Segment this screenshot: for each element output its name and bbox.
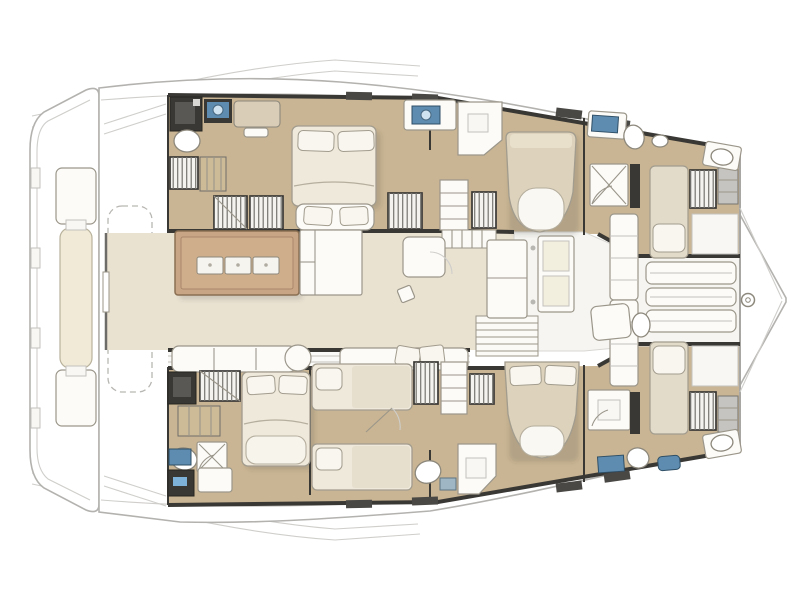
salon-sofa — [172, 345, 311, 372]
desk — [198, 468, 232, 492]
forestay-ring-icon — [742, 294, 755, 307]
window — [412, 497, 438, 506]
basin-bowl-icon — [421, 110, 431, 120]
bench-cushion — [340, 206, 369, 225]
washbasin-blue — [169, 449, 191, 465]
foyer-basin — [632, 313, 650, 337]
wardrobe-hatched — [690, 392, 716, 430]
wardrobe-hatched — [472, 192, 496, 228]
wardrobe-hatched — [200, 371, 240, 401]
bed-foot-white — [518, 188, 564, 230]
wardrobe-hatched — [690, 170, 716, 208]
toilet — [174, 130, 200, 152]
aft-deck-platform — [30, 88, 99, 511]
bow-platform — [646, 262, 736, 332]
bed-foot-white — [246, 436, 306, 464]
partition-dark — [630, 164, 640, 208]
transom-step — [31, 248, 40, 268]
salon-sliding-door — [103, 272, 109, 312]
floor-plan-stage — [0, 0, 800, 600]
transom-step — [31, 408, 40, 428]
pillow — [510, 365, 542, 386]
pillow — [279, 375, 308, 394]
washbasin-blue — [591, 115, 618, 133]
shower-tray — [175, 102, 195, 124]
desk-stool — [244, 128, 268, 137]
duvet — [352, 366, 410, 408]
locker-panel — [173, 377, 191, 397]
pillow — [544, 365, 576, 386]
knob-icon — [531, 300, 536, 305]
fridge-door — [543, 241, 569, 271]
aft-seat-top — [56, 168, 96, 224]
pillow — [316, 368, 342, 390]
shower-stall — [588, 390, 630, 430]
wardrobe-hatched — [250, 196, 283, 229]
wardrobe-hatched — [414, 362, 438, 404]
companionway-steps-wood — [178, 406, 220, 436]
shower-tray — [466, 458, 486, 478]
pillow — [298, 130, 335, 151]
washbasin-oval — [652, 135, 668, 147]
foyer-seat — [590, 303, 631, 341]
locker-gray — [718, 168, 738, 204]
stowage-bench — [692, 346, 738, 386]
locker-gray — [718, 396, 738, 432]
aft-bench-cushion — [60, 228, 92, 368]
fridge-door — [543, 276, 569, 306]
wardrobe-hatched — [470, 374, 494, 404]
aft-seat-bottom — [56, 370, 96, 426]
shower-tray — [598, 400, 620, 420]
companionway-fwd-port — [610, 214, 638, 300]
window — [346, 92, 372, 100]
transom-step — [31, 168, 40, 188]
shower-tray — [468, 114, 488, 132]
window — [346, 500, 372, 508]
companionway-steps-wood — [200, 157, 226, 191]
partition-dark — [630, 392, 640, 434]
bench-bracket — [66, 220, 86, 230]
wardrobe-hatched — [388, 193, 422, 229]
shelf-unit — [441, 362, 467, 414]
wardrobe-hatched — [214, 196, 247, 229]
pillow — [653, 224, 685, 252]
basin-bowl-icon — [213, 105, 223, 115]
dining-table — [403, 237, 445, 277]
galley-counter — [300, 230, 362, 295]
bed-foot-white — [520, 426, 564, 456]
stove-burners — [197, 257, 279, 274]
pillow — [246, 375, 275, 395]
washbasin-blue — [657, 455, 680, 471]
bed-head-band — [510, 134, 572, 148]
burner-dot — [264, 263, 268, 267]
shower-stall — [590, 164, 628, 206]
bench-cushion — [303, 206, 332, 226]
wardrobe-hatched — [170, 157, 198, 189]
burner-dot — [236, 263, 240, 267]
transom-step — [31, 328, 40, 348]
shower-head-icon — [193, 99, 200, 106]
duvet — [352, 446, 410, 488]
sofa-round-end — [285, 345, 311, 371]
washbasin-blue — [597, 455, 624, 473]
vanity-desk — [234, 101, 280, 127]
shelf-unit — [440, 180, 468, 230]
stairs-to-starboard-hull — [476, 316, 538, 356]
stbd-mid-cabin — [505, 362, 579, 462]
burner-dot — [208, 263, 212, 267]
floor-plan-canvas — [0, 0, 800, 600]
knob-icon — [531, 246, 536, 251]
pantry-column — [487, 240, 527, 318]
basin-panel — [440, 478, 456, 490]
tv-screen-icon — [173, 477, 187, 486]
bench-bracket — [66, 366, 86, 376]
pillow — [338, 130, 375, 151]
stowage-bench — [692, 214, 738, 254]
pillow — [316, 448, 342, 470]
pillow — [653, 346, 685, 374]
